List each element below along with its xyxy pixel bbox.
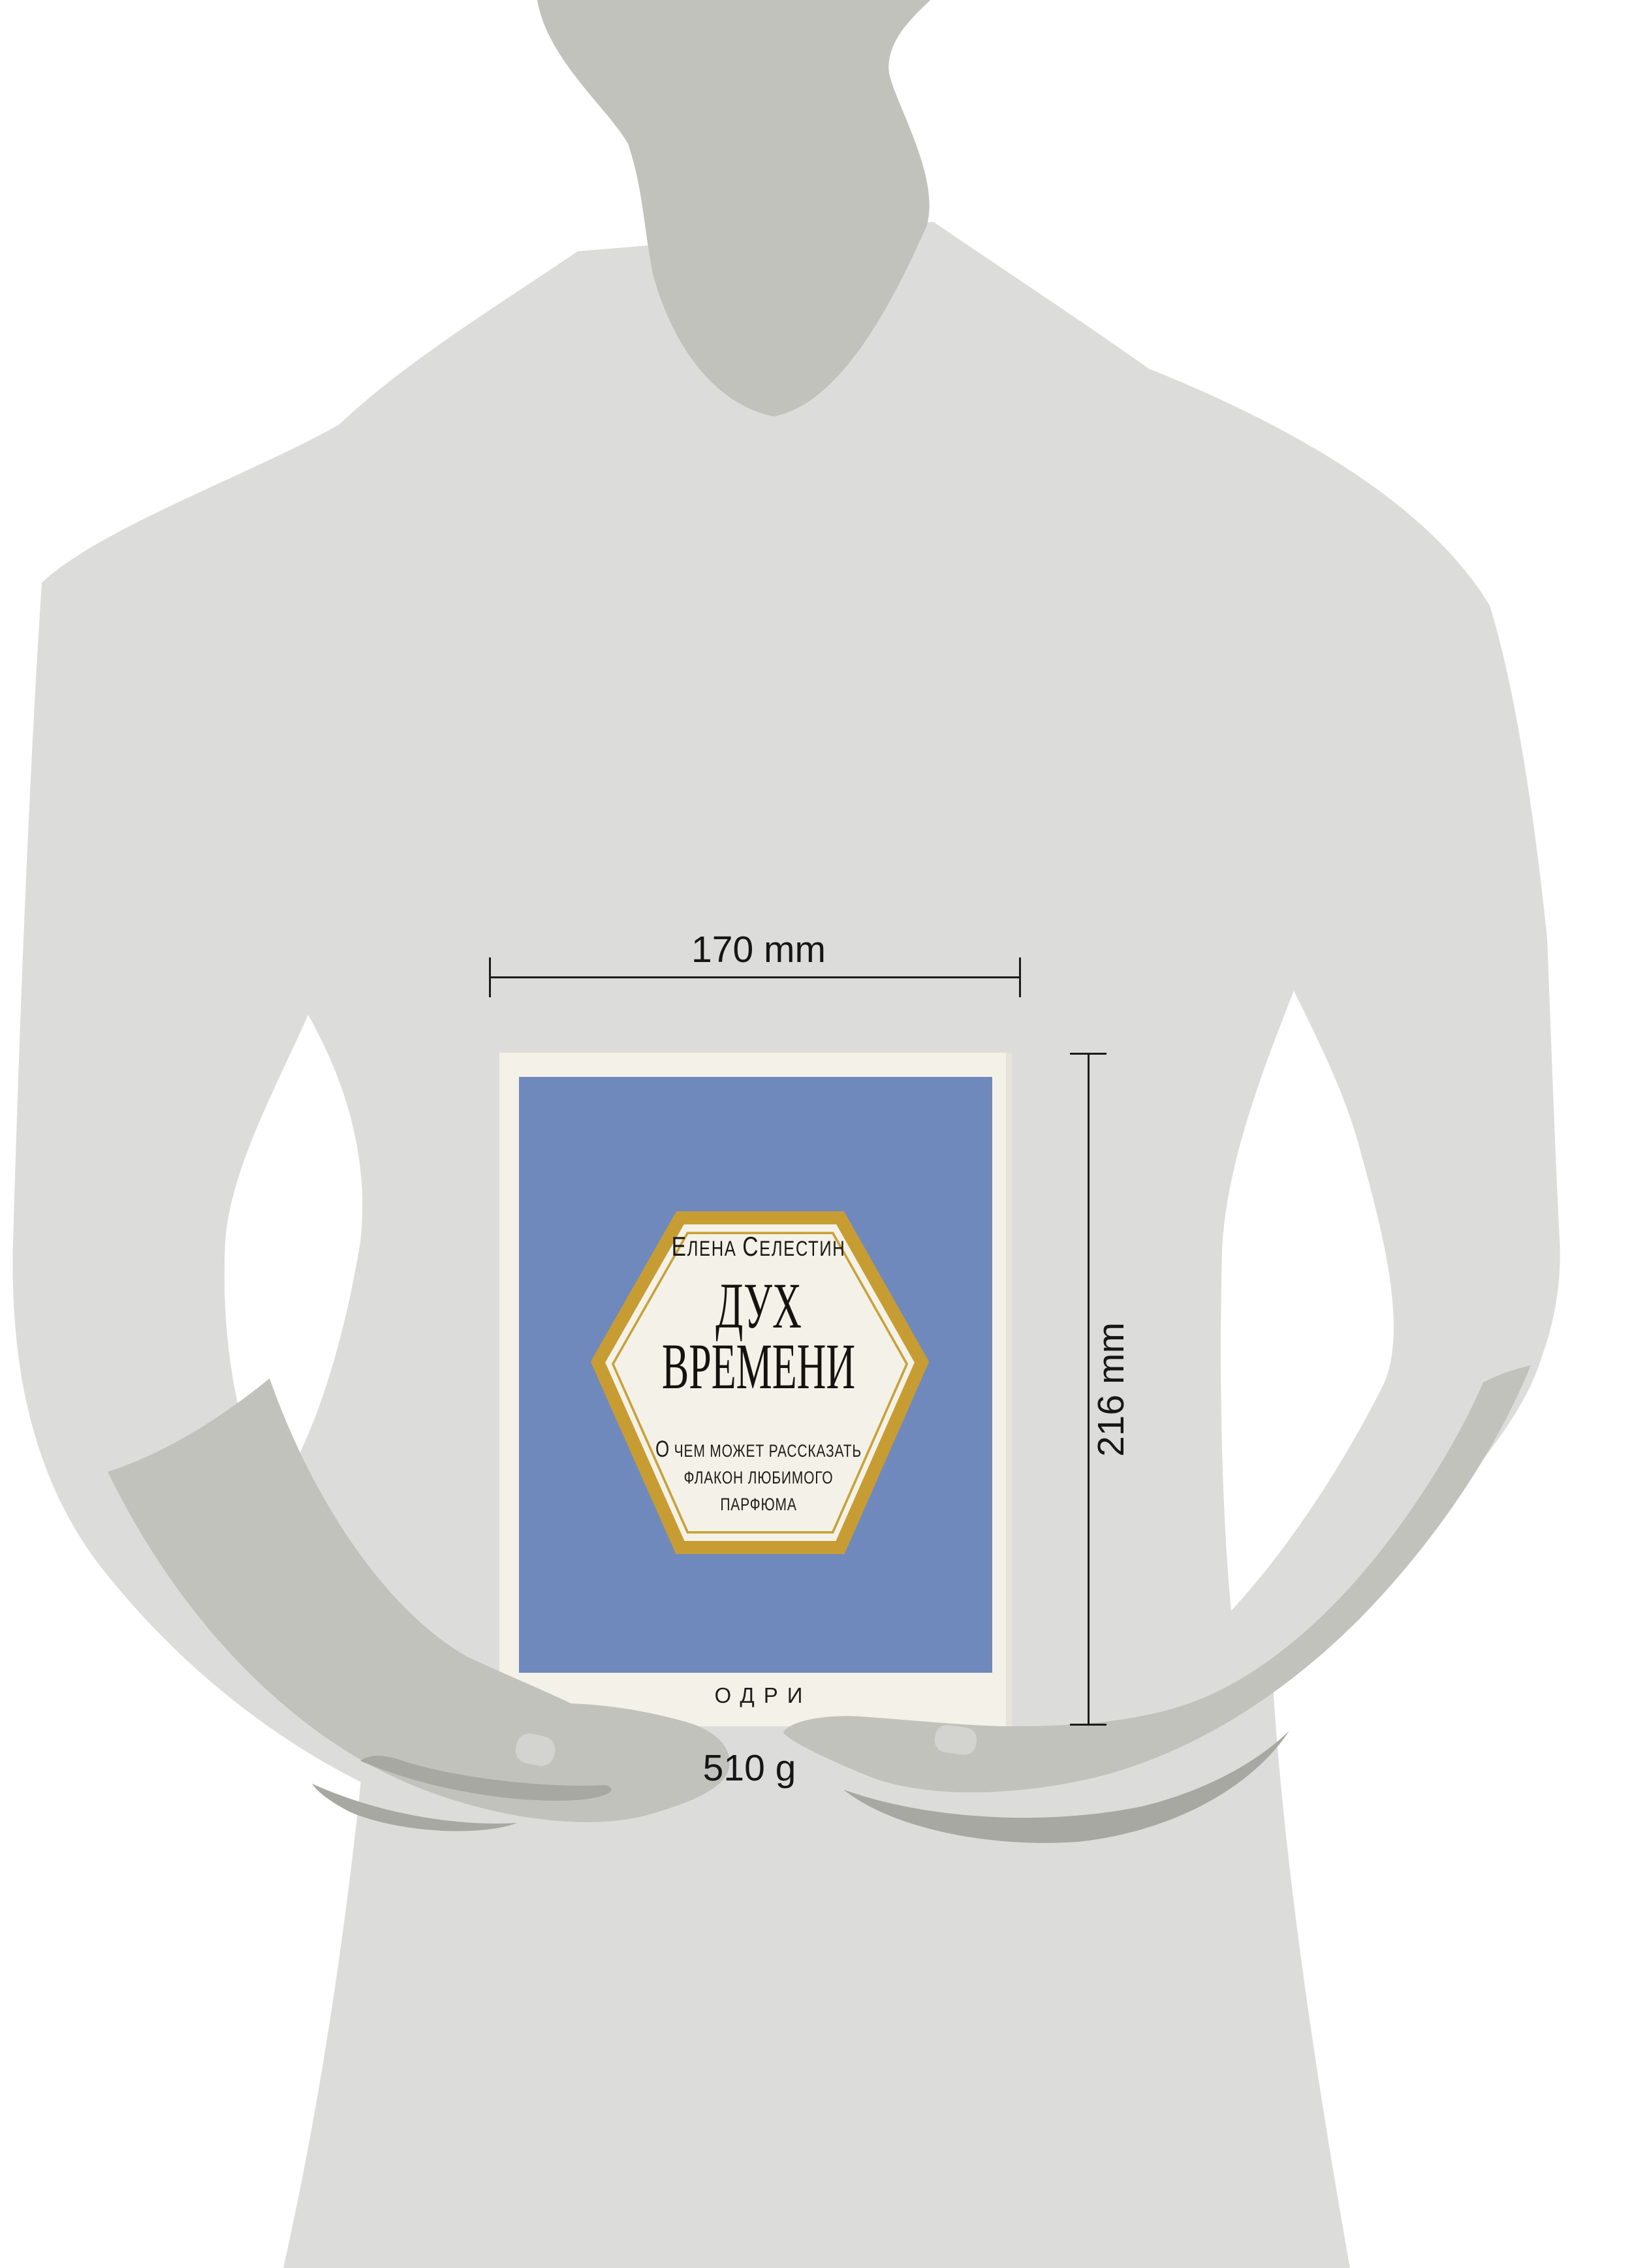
width-dimension-label: 170 mm (661, 928, 856, 971)
weight-label: 510 g (651, 1747, 847, 1790)
width-dimension-tick-left (489, 957, 491, 997)
width-dimension-tick-right (1019, 957, 1021, 997)
right-hand (783, 1365, 1531, 1792)
hands-layer (0, 0, 1632, 2268)
height-dimension-tick-bottom (1070, 1724, 1106, 1726)
height-dimension-label: 216 mm (1088, 1292, 1134, 1487)
width-dimension-line (490, 976, 1020, 978)
book-size-visualization: Елена Селестин ДУХ ВРЕМЕНИ О чем может р… (0, 0, 1632, 2268)
height-dimension-tick-top (1070, 1053, 1106, 1055)
left-hand (108, 1378, 730, 1822)
